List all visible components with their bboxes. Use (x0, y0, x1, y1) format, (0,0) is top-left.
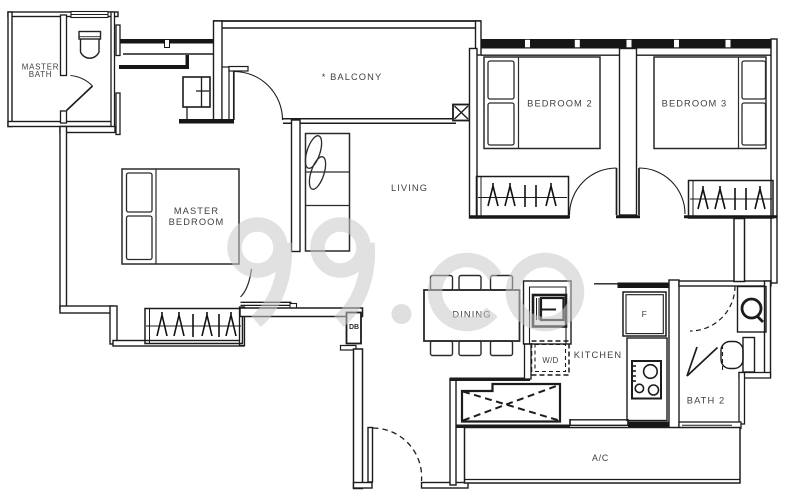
svg-text:KITCHEN: KITCHEN (574, 350, 623, 360)
svg-text:BEDROOM 2: BEDROOM 2 (527, 98, 593, 108)
svg-text:BATH 2: BATH 2 (687, 396, 725, 406)
svg-text:A/C: A/C (592, 453, 609, 463)
svg-text:W/D: W/D (542, 356, 558, 365)
svg-text:BEDROOM 3: BEDROOM 3 (662, 98, 728, 108)
svg-text:MASTER: MASTER (174, 206, 219, 216)
svg-text:BEDROOM: BEDROOM (169, 217, 225, 227)
svg-text:F: F (642, 309, 648, 319)
svg-text:* BALCONY: * BALCONY (322, 72, 383, 82)
svg-text:DB: DB (349, 324, 359, 331)
svg-text:LIVING: LIVING (391, 183, 428, 193)
svg-text:BATH: BATH (29, 70, 53, 79)
